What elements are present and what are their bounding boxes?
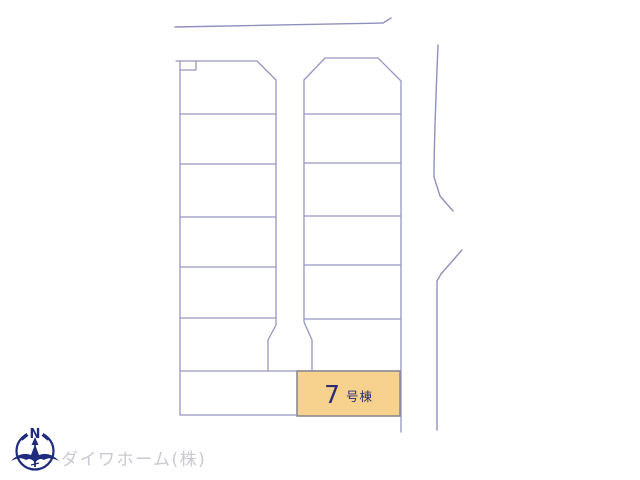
top-road-line — [175, 18, 391, 27]
left-block-corner-notch — [180, 61, 196, 70]
site-plan-page: 7 号棟 N ダイワホーム(株) — [0, 0, 640, 480]
left-parcel-block — [176, 61, 276, 415]
lot-7-number-label: 7 — [324, 380, 340, 409]
road-boundary-lines — [175, 18, 462, 430]
right-road-lower-line — [437, 250, 462, 430]
compass: N — [11, 424, 59, 470]
highlighted-lot-7: 7 号棟 — [297, 371, 400, 416]
company-watermark: ダイワホーム(株) — [61, 445, 206, 470]
site-plan-drawing: 7 号棟 N — [0, 0, 640, 480]
right-road-upper-line — [434, 45, 453, 211]
right-block-west-edge — [304, 80, 312, 370]
lot-7-suffix-label: 号棟 — [346, 389, 373, 404]
left-block-outline-top-right — [176, 61, 276, 371]
